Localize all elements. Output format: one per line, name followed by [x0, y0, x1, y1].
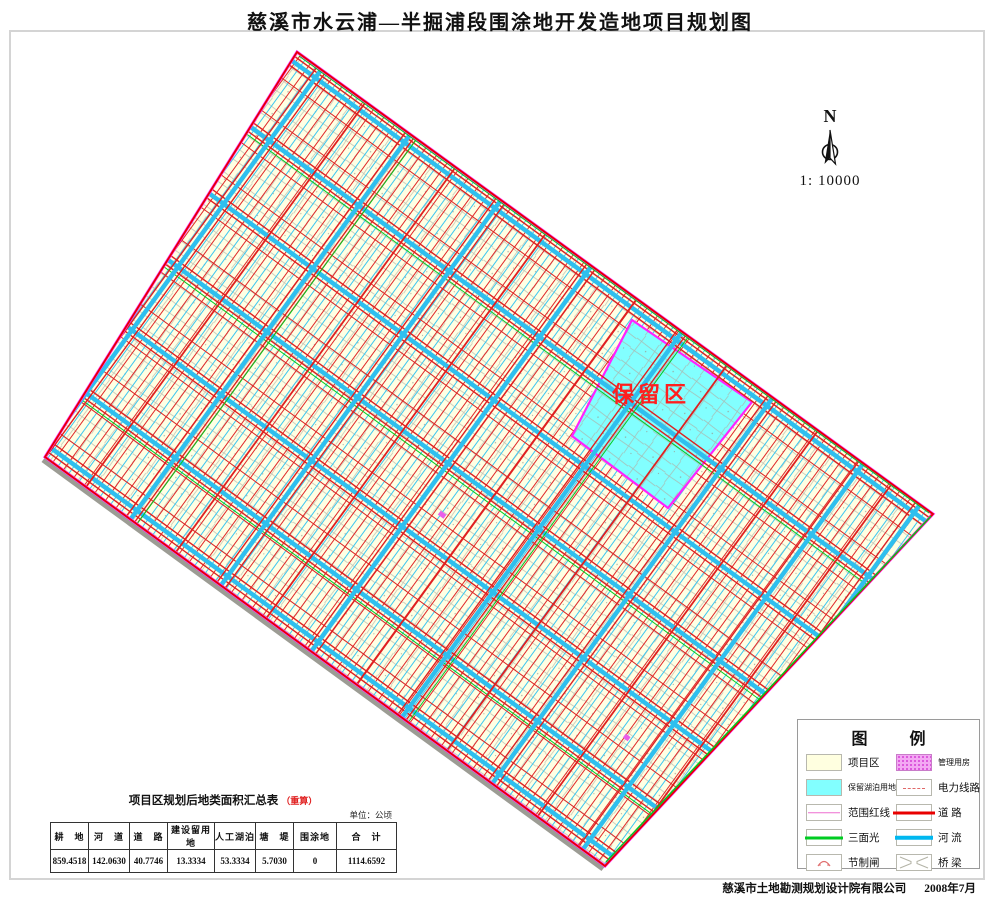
area-value: 53.3334: [215, 850, 256, 873]
scale-label: 1: 10000: [795, 173, 865, 190]
table-header-row: 耕 地 河 道 道 路 建设留用地 人工湖泊 塘 堤 围涂地 合 计: [51, 823, 397, 850]
area-value: 142.0630: [89, 850, 130, 873]
table-unit-label: 单位：公顷: [50, 809, 392, 821]
col-header: 建设留用地: [168, 823, 215, 850]
bridge-icon: [896, 854, 932, 871]
col-header: 合 计: [337, 823, 397, 850]
col-header: 人工湖泊: [215, 823, 256, 850]
legend-item-three-side-lined-canal: 三面光: [806, 829, 896, 846]
drawing-date: 2008年7月: [924, 883, 976, 895]
legend-item-river: 河 流: [896, 829, 980, 846]
three-side-line-symbol: [806, 829, 842, 846]
legend-item-management-housing: 管理用房: [896, 754, 980, 771]
col-header: 围涂地: [294, 823, 337, 850]
legend-item-project-area: 项目区: [806, 754, 896, 771]
page-title: 慈溪市水云浦—半掘浦段围涂地开发造地项目规划图: [0, 6, 1000, 35]
project-area-swatch: [806, 754, 842, 771]
legend-item-power-line: 电力线路: [896, 779, 980, 796]
legend-item-road: 道 路: [896, 804, 980, 821]
credit-line: 慈溪市土地勘测规划设计院有限公司2008年7月: [722, 880, 976, 896]
company-name: 慈溪市土地勘测规划设计院有限公司: [722, 883, 906, 895]
reserved-area-label: 保留区: [611, 382, 690, 407]
area-value: 13.3334: [168, 850, 215, 873]
legend-item-reserved-lake-land: 保留湖泊用地: [806, 779, 896, 796]
area-summary: 项目区规划后地类面积汇总表（重算） 单位：公顷 耕 地 河 道 道 路 建设留用…: [50, 792, 396, 873]
legend-item-control-gate: 节制闸: [806, 854, 896, 871]
legend-item-bridge: 桥 梁: [896, 854, 980, 871]
power-line-symbol: [896, 779, 932, 796]
legend-title: 图 例: [798, 720, 979, 752]
area-value: 1114.6592: [337, 850, 397, 873]
area-value: 5.7030: [256, 850, 294, 873]
legend-item-boundary-red-line: 范围红线: [806, 804, 896, 821]
management-housing-swatch: [896, 754, 932, 771]
area-summary-table: 耕 地 河 道 道 路 建设留用地 人工湖泊 塘 堤 围涂地 合 计 859.4…: [50, 822, 397, 873]
reserved-lake-swatch: [806, 779, 842, 796]
col-header: 塘 堤: [256, 823, 294, 850]
col-header: 道 路: [130, 823, 168, 850]
river-line-symbol: [896, 829, 932, 846]
area-value: 0: [294, 850, 337, 873]
col-header: 耕 地: [51, 823, 89, 850]
north-label: N: [795, 106, 865, 126]
table-title: 项目区规划后地类面积汇总表（重算）: [50, 792, 396, 808]
area-value: 40.7746: [130, 850, 168, 873]
legend-grid: 项目区 管理用房 保留湖泊用地 电力线路 范围红线 道 路: [798, 752, 979, 877]
area-value: 859.4518: [51, 850, 89, 873]
boundary-red-line-symbol: [806, 804, 842, 821]
planning-drawing-page: 慈溪市水云浦—半掘浦段围涂地开发造地项目规划图: [0, 0, 1000, 902]
col-header: 河 道: [89, 823, 130, 850]
control-gate-icon: [806, 854, 842, 871]
table-value-row: 859.4518 142.0630 40.7746 13.3334 53.333…: [51, 850, 397, 873]
compass: N 1: 10000: [795, 106, 865, 190]
legend: 图 例 项目区 管理用房 保留湖泊用地 电力线路 范围红线: [797, 719, 980, 869]
north-arrow-icon: [808, 128, 852, 170]
road-line-symbol: [896, 804, 932, 821]
table-title-note: （重算）: [281, 796, 317, 806]
